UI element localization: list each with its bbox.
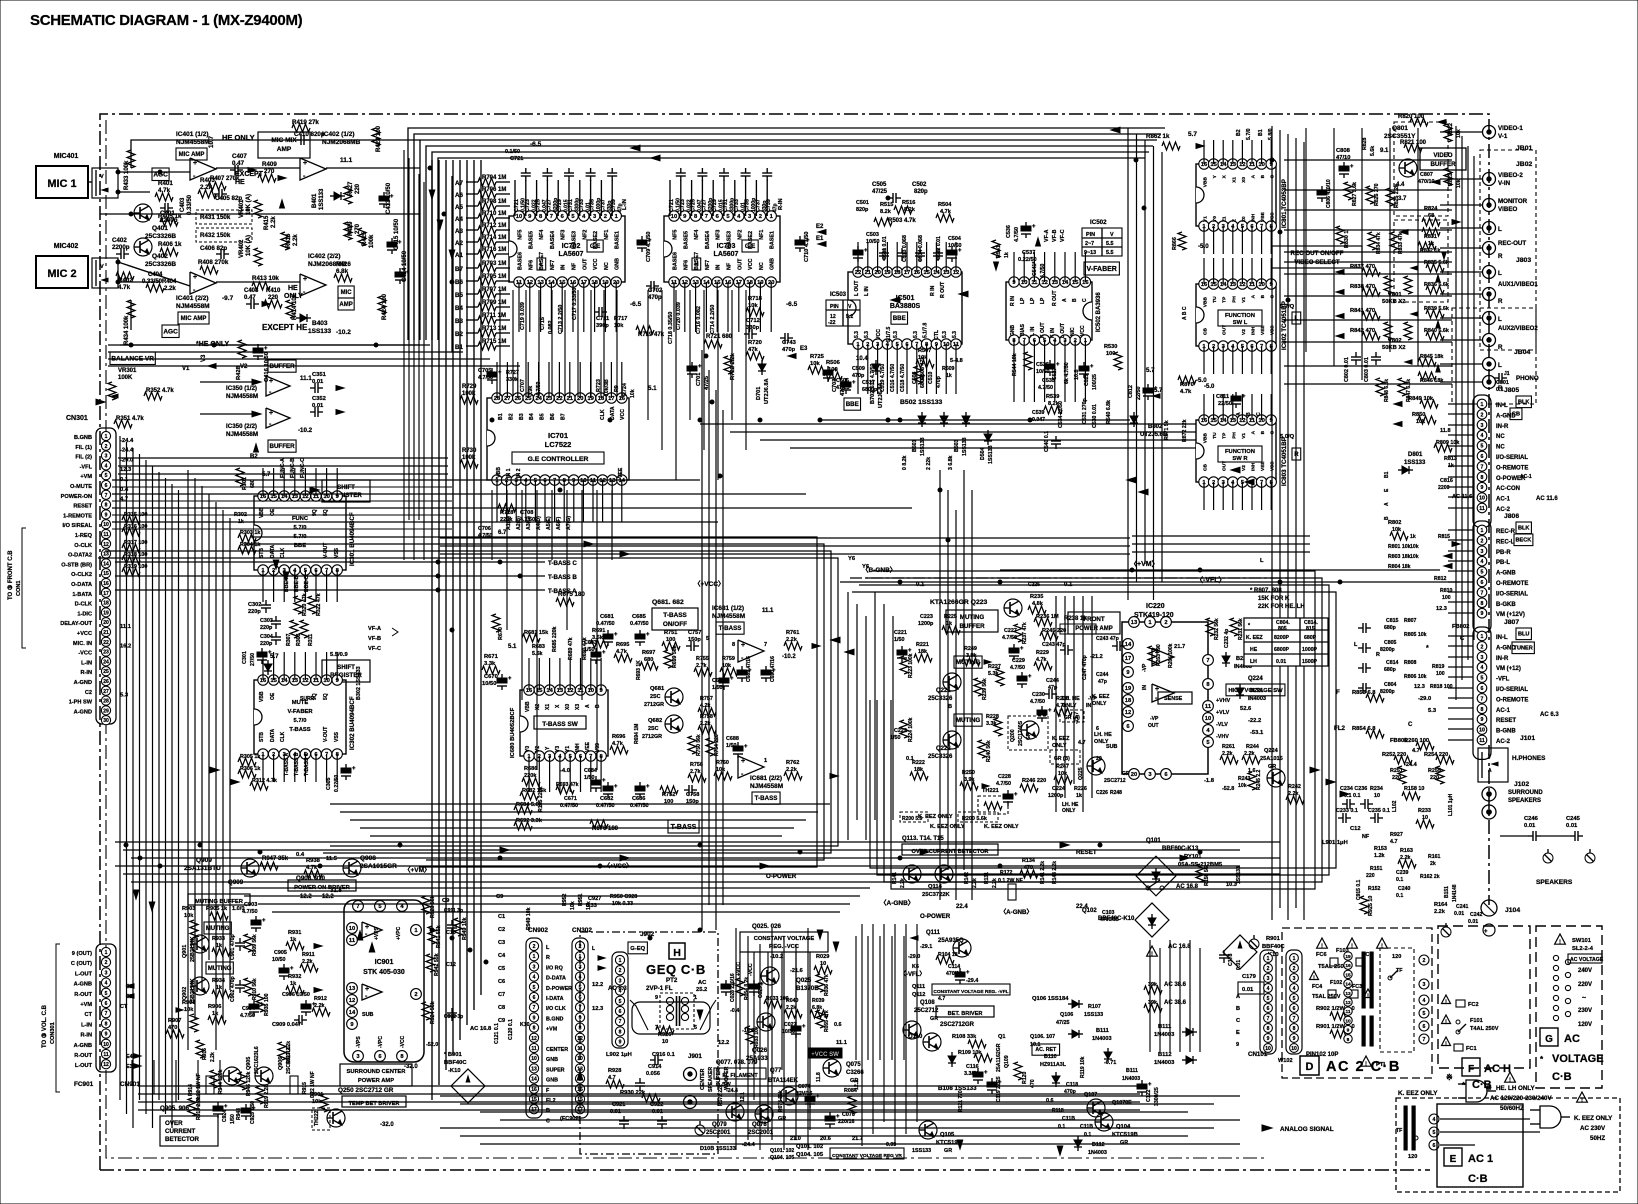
- svg-text:-VP: -VP: [1142, 663, 1148, 672]
- svg-text:!: !: [1151, 952, 1153, 958]
- svg-text:NJM4558M: NJM4558M: [750, 783, 783, 790]
- svg-text:8: 8: [1481, 601, 1484, 607]
- svg-text:C720 0.039: C720 0.039: [676, 302, 682, 330]
- svg-text:AMP: AMP: [339, 302, 352, 308]
- svg-text:10k: 10k: [1392, 527, 1401, 533]
- svg-text:BBF40C: BBF40C: [444, 1060, 467, 1066]
- svg-text:T-BASS: T-BASS: [289, 727, 310, 733]
- svg-text:L102: L102: [1392, 800, 1398, 812]
- svg-text:7: 7: [1423, 1037, 1426, 1043]
- svg-text:0.1: 0.1: [1084, 1132, 1091, 1138]
- svg-text:E: E: [1236, 1030, 1240, 1036]
- svg-text:+: +: [614, 784, 618, 790]
- svg-text:10k/3B: 10k/3B: [604, 379, 610, 396]
- svg-text:(FC902): (FC902): [560, 1116, 581, 1122]
- svg-text:UT2J6.8A: UT2J6.8A: [764, 379, 770, 405]
- svg-text:H.PHONES: H.PHONES: [1512, 755, 1546, 762]
- svg-text:NJM4558M: NJM4558M: [712, 613, 745, 620]
- svg-text:C402: C402: [112, 237, 127, 244]
- svg-text:H: H: [673, 947, 681, 959]
- svg-text:PIN: PIN: [1086, 232, 1095, 238]
- svg-text:1-PH SW: 1-PH SW: [69, 700, 93, 706]
- svg-text:VCC: VCC: [876, 329, 882, 340]
- svg-text:LH: LH: [1250, 659, 1257, 665]
- svg-text:R352 4.7k: R352 4.7k: [146, 388, 174, 394]
- svg-text:R509: R509: [942, 366, 955, 372]
- svg-text:A-GND: A-GND: [74, 680, 92, 686]
- svg-text:B112: B112: [1092, 1142, 1105, 1148]
- svg-text:C909 0.047: C909 0.047: [272, 1022, 301, 1028]
- svg-text:12.2: 12.2: [854, 1080, 860, 1090]
- svg-text:6.8k: 6.8k: [336, 268, 349, 275]
- svg-text:VCC: VCC: [620, 409, 626, 420]
- svg-text:R-IN: R-IN: [81, 670, 93, 676]
- svg-text:0.1: 0.1: [1396, 893, 1403, 899]
- svg-text:50KB X2: 50KB X2: [1382, 345, 1406, 351]
- svg-text:10k: 10k: [716, 767, 725, 773]
- svg-text:C7: C7: [498, 992, 505, 998]
- svg-text:220V: 220V: [1578, 982, 1592, 988]
- svg-text:V1: V1: [182, 366, 190, 372]
- svg-text:L IN: L IN: [864, 286, 870, 296]
- svg-text:C304: C304: [260, 634, 273, 640]
- svg-text:7: 7: [1293, 1016, 1296, 1022]
- svg-text:V-OUT: V-OUT: [323, 543, 329, 558]
- svg-text:C683: C683: [584, 640, 597, 646]
- svg-text:26: 26: [103, 679, 109, 685]
- svg-text:SURROUND: SURROUND: [1508, 790, 1543, 796]
- svg-text:10/50: 10/50: [272, 957, 286, 963]
- svg-text:K OUT: K OUT: [1040, 322, 1046, 338]
- svg-text:!: !: [1509, 1078, 1511, 1084]
- svg-text:ANALOG SIGNAL: ANALOG SIGNAL: [1280, 1126, 1334, 1133]
- svg-text:SW L: SW L: [1233, 320, 1248, 326]
- svg-text:Q908. 910: Q908. 910: [296, 875, 325, 882]
- svg-text:-29.0: -29.0: [908, 954, 920, 960]
- svg-text:R401: R401: [158, 180, 173, 187]
- svg-text:O-DATA: O-DATA: [71, 582, 92, 588]
- svg-text:7: 7: [1267, 1016, 1270, 1022]
- svg-text:R351 4.7k: R351 4.7k: [116, 416, 144, 422]
- svg-text:9: 9: [105, 512, 108, 518]
- svg-text:2: 2: [1164, 620, 1167, 626]
- svg-text:2: 2: [1267, 966, 1270, 972]
- svg-text:10k: 10k: [1410, 544, 1419, 550]
- svg-text:0.047: 0.047: [1032, 417, 1045, 423]
- svg-text:R828: R828: [1362, 137, 1368, 150]
- svg-text:B2: B2: [250, 454, 258, 460]
- svg-text:TF: TF: [1396, 1128, 1402, 1134]
- svg-text:C670: C670: [484, 674, 498, 680]
- svg-text:C516 4.7/50: C516 4.7/50: [890, 364, 896, 392]
- svg-text:Q102: Q102: [1082, 908, 1097, 914]
- svg-text:CTL: CTL: [934, 329, 940, 340]
- svg-text:5: 5: [1433, 1130, 1436, 1136]
- svg-text:1: 1: [764, 758, 767, 764]
- svg-text:IC401 (2/2): IC401 (2/2): [176, 295, 209, 302]
- svg-text:2: 2: [105, 960, 108, 966]
- svg-text:-32.0: -32.0: [404, 1064, 418, 1070]
- svg-text:+: +: [730, 676, 734, 682]
- svg-text:R862 1k: R862 1k: [1146, 133, 1170, 140]
- svg-text:11: 11: [349, 938, 356, 944]
- svg-text:MUTING: MUTING: [956, 659, 981, 666]
- svg-text:R IN: R IN: [1010, 296, 1016, 306]
- svg-text:6: 6: [1481, 686, 1484, 692]
- svg-text:Q025: Q025: [796, 977, 812, 984]
- svg-text:JB01: JB01: [1516, 145, 1532, 152]
- svg-text:FUNC: FUNC: [292, 516, 309, 522]
- svg-text:D10B 1SS133: D10B 1SS133: [700, 1146, 736, 1152]
- svg-text:B403: B403: [312, 320, 328, 327]
- svg-text:6: 6: [1433, 1143, 1436, 1149]
- svg-text:9.1: 9.1: [1380, 148, 1389, 154]
- svg-text:Y0: Y0: [525, 746, 531, 752]
- svg-text:8: 8: [533, 1026, 536, 1032]
- svg-text:3 6.8k: 3 6.8k: [948, 455, 954, 470]
- svg-text:REC-L: REC-L: [1496, 539, 1515, 545]
- svg-text:C241: C241: [1456, 904, 1469, 910]
- svg-text:J1: J1: [1504, 371, 1510, 377]
- svg-text:4: 4: [1293, 986, 1296, 992]
- svg-text:330p: 330p: [746, 325, 760, 331]
- svg-text:R431 150k: R431 150k: [200, 214, 231, 221]
- svg-text:10: 10: [662, 1039, 668, 1045]
- svg-text:R228: R228: [986, 714, 999, 720]
- svg-text:C804: C804: [1384, 682, 1397, 688]
- svg-text:C243 47p: C243 47p: [1042, 642, 1066, 648]
- svg-text:B-GNB: B-GNB: [1496, 729, 1516, 735]
- svg-text:R040: R040: [786, 998, 799, 1004]
- svg-text:BBE: BBE: [846, 401, 859, 408]
- svg-text:ONLY: ONLY: [1062, 808, 1076, 814]
- svg-text:CN901: CN901: [120, 1081, 140, 1088]
- svg-text:Q905: Q905: [246, 1057, 252, 1070]
- svg-text:11: 11: [1345, 1009, 1350, 1015]
- svg-text:R925 10: R925 10: [1368, 896, 1374, 916]
- svg-text:C815: C815: [1386, 618, 1399, 624]
- svg-text:BLK: BLK: [1518, 526, 1530, 532]
- svg-text:BASE4: BASE4: [705, 231, 711, 249]
- svg-text:BASE1: BASE1: [770, 231, 776, 249]
- svg-text:C242: C242: [1470, 912, 1483, 918]
- svg-text:C10: C10: [446, 930, 456, 936]
- svg-text:10: 10: [531, 1056, 537, 1062]
- svg-text:C914: C914: [648, 1064, 662, 1070]
- svg-text:8: 8: [105, 1021, 108, 1027]
- svg-text:I/O-SERIAL: I/O-SERIAL: [1496, 591, 1528, 597]
- svg-text:B501: B501: [912, 439, 918, 452]
- svg-text:C240: C240: [1398, 886, 1411, 892]
- svg-text:0.01: 0.01: [1236, 960, 1242, 970]
- svg-text:R530: R530: [1104, 344, 1117, 350]
- svg-text:2SC3551Y: 2SC3551Y: [1384, 133, 1416, 140]
- svg-text:AC H: AC H: [1484, 1063, 1511, 1075]
- svg-text:A: A: [1251, 430, 1257, 434]
- svg-text:13: 13: [1131, 620, 1138, 626]
- svg-text:B502 1SS133: B502 1SS133: [900, 399, 943, 406]
- svg-text:R311: R311: [308, 634, 314, 646]
- svg-text:A: A: [1251, 294, 1257, 298]
- svg-text:MIC AMP: MIC AMP: [179, 152, 205, 158]
- svg-text:8: 8: [1347, 1037, 1350, 1043]
- svg-text:10k: 10k: [614, 323, 624, 329]
- svg-text:0.6: 0.6: [834, 1022, 842, 1028]
- svg-text:KTC519B: KTC519B: [1112, 1132, 1138, 1138]
- svg-text:C222: C222: [894, 728, 907, 734]
- svg-text:TP: TP: [1222, 296, 1228, 303]
- svg-text:R164: R164: [1434, 902, 1448, 908]
- svg-text:MIC402: MIC402: [54, 243, 79, 250]
- svg-text:11.1: 11.1: [340, 157, 353, 164]
- svg-text:2.2k: 2.2k: [164, 286, 176, 292]
- svg-text:NF2: NF2: [737, 230, 743, 240]
- svg-text:+: +: [193, 274, 197, 281]
- svg-text:PT2: PT2: [666, 977, 678, 984]
- svg-text:RESET: RESET: [1496, 718, 1516, 724]
- svg-text:AC 11.6: AC 11.6: [1536, 496, 1558, 502]
- svg-text:B: B: [1246, 412, 1252, 416]
- svg-text:R244: R244: [1246, 744, 1259, 750]
- svg-text:47p: 47p: [1098, 679, 1107, 685]
- svg-text:22: 22: [103, 640, 109, 646]
- svg-text:10: 10: [1479, 728, 1485, 734]
- svg-text:8: 8: [732, 642, 735, 648]
- svg-text:+: +: [1014, 792, 1018, 798]
- svg-text:14: 14: [349, 1010, 356, 1016]
- svg-text:※: ※: [1486, 1084, 1492, 1092]
- svg-text:Q224: Q224: [1248, 676, 1263, 682]
- svg-text:4.7/50: 4.7/50: [1002, 635, 1017, 641]
- svg-text:1: 1: [694, 995, 697, 1001]
- svg-text:C244: C244: [1096, 672, 1109, 678]
- svg-text:0.4: 0.4: [296, 852, 305, 858]
- svg-text:1.2k: 1.2k: [1374, 853, 1385, 859]
- svg-text:VBB: VBB: [496, 467, 502, 478]
- svg-text:R808: R808: [1404, 660, 1417, 666]
- svg-text:R-IN: R-IN: [778, 199, 784, 211]
- svg-text:R224 100k: R224 100k: [908, 717, 914, 742]
- svg-text:1k: 1k: [1004, 252, 1010, 258]
- svg-text:1: 1: [619, 958, 622, 964]
- svg-text:NF3: NF3: [561, 230, 567, 240]
- svg-text:R055 47k: R055 47k: [824, 1010, 830, 1032]
- svg-text:X0: X0: [1241, 177, 1247, 183]
- svg-text:+: +: [1148, 1082, 1152, 1088]
- svg-text:25C2712: 25C2712: [914, 1008, 939, 1014]
- svg-text:4.7: 4.7: [1078, 740, 1086, 746]
- svg-text:LC7522: LC7522: [545, 440, 572, 449]
- svg-text:NF4: NF4: [694, 230, 700, 240]
- svg-text:L901 1μH: L901 1μH: [1322, 840, 1348, 846]
- svg-text:19: 19: [1125, 686, 1132, 692]
- svg-text:Q113. T14. T15: Q113. T14. T15: [902, 836, 944, 842]
- svg-text:T-BASS B: T-BASS B: [548, 574, 577, 581]
- svg-text:FUNC-A: FUNC-A: [280, 458, 286, 478]
- svg-text:11.1: 11.1: [762, 608, 774, 614]
- svg-text:B1370E: B1370E: [796, 985, 818, 992]
- svg-text:4.7/50: 4.7/50: [1014, 227, 1020, 242]
- svg-text:5Q: 5Q: [323, 693, 329, 700]
- svg-text:+: +: [398, 240, 402, 246]
- svg-text:C702: C702: [648, 288, 663, 294]
- svg-text:3: 3: [1267, 976, 1270, 982]
- svg-text:!: !: [1381, 944, 1383, 950]
- svg-text:10: 10: [1374, 793, 1380, 799]
- svg-text:5: 5: [619, 999, 622, 1005]
- svg-text:A: A: [1236, 412, 1242, 416]
- svg-text:GNB: GNB: [546, 1057, 558, 1063]
- svg-text:+: +: [802, 1024, 806, 1030]
- svg-text:HIGH VOLTAGE SW: HIGH VOLTAGE SW: [1228, 688, 1283, 694]
- svg-text:!: !: [1445, 1000, 1447, 1006]
- svg-text:6: 6: [1096, 726, 1099, 732]
- svg-text:C8: C8: [498, 1005, 505, 1011]
- svg-text:R807: R807: [1404, 618, 1417, 624]
- svg-text:KTA1266GR Q223: KTA1266GR Q223: [930, 599, 988, 606]
- svg-text:A: A: [1062, 298, 1068, 302]
- svg-text:CON301: CON301: [50, 1022, 56, 1044]
- svg-text:+: +: [732, 982, 736, 988]
- svg-text:G.E: G.E: [745, 244, 755, 250]
- svg-text:B.GND: B.GND: [546, 1016, 563, 1022]
- svg-text:C: C: [1408, 722, 1413, 728]
- svg-text:5.7/0: 5.7/0: [294, 718, 307, 724]
- svg-text:C118: C118: [1066, 1082, 1078, 1088]
- svg-text:10k: 10k: [1058, 771, 1067, 777]
- svg-text:1: 1: [105, 950, 108, 956]
- svg-text:H: H: [694, 262, 698, 268]
- svg-text:2.2k: 2.2k: [271, 216, 277, 228]
- svg-text:8200p: 8200p: [1380, 647, 1395, 653]
- svg-text:7: 7: [533, 1005, 536, 1011]
- svg-text:C221: C221: [894, 630, 907, 636]
- svg-text:R-OUT: R-OUT: [74, 992, 92, 998]
- svg-text:R685 220k: R685 220k: [552, 627, 558, 652]
- svg-text:C502: C502: [912, 182, 927, 188]
- svg-text:B3: B3: [519, 413, 525, 420]
- svg-text:AC 16.8: AC 16.8: [470, 1026, 492, 1032]
- svg-text:Q111: Q111: [926, 930, 941, 936]
- svg-text:B802: B802: [1148, 424, 1163, 430]
- svg-text:12: 12: [103, 542, 109, 548]
- svg-text:A-GNB: A-GNB: [74, 1043, 92, 1049]
- svg-text:9: 9: [1481, 611, 1484, 617]
- svg-text:230V: 230V: [1578, 1008, 1592, 1014]
- svg-text:IN-R: IN-R: [1496, 656, 1509, 662]
- svg-text:0.33/50: 0.33/50: [187, 194, 193, 215]
- svg-text:100: 100: [666, 637, 675, 643]
- svg-text:4.7/50: 4.7/50: [1010, 665, 1025, 671]
- svg-text:C906 10/50: C906 10/50: [282, 992, 310, 998]
- svg-text:A3: A3: [455, 228, 463, 235]
- svg-text:L: L: [1498, 316, 1502, 323]
- svg-text:R686: R686: [524, 766, 537, 772]
- svg-text:V: V: [100, 174, 104, 180]
- svg-text:D-DATA: D-DATA: [546, 976, 566, 982]
- svg-text:R245 2.2: R245 2.2: [1256, 769, 1262, 790]
- svg-text:24: 24: [103, 659, 109, 665]
- svg-text:5: 5: [694, 1025, 697, 1031]
- svg-text:EXCEPT HE: EXCEPT HE: [262, 323, 308, 332]
- svg-text:R249: R249: [964, 646, 977, 652]
- svg-text:4.7/50: 4.7/50: [1030, 699, 1045, 705]
- svg-text:VF-C: VF-C: [368, 646, 381, 652]
- svg-text:4: 4: [533, 975, 536, 981]
- svg-text:AC: AC: [1564, 1033, 1580, 1045]
- svg-text:C531 270p: C531 270p: [1082, 398, 1088, 424]
- svg-text:PIN: PIN: [830, 304, 839, 310]
- svg-text:4.7: 4.7: [608, 1075, 616, 1081]
- svg-text:Y1: Y1: [1203, 216, 1209, 222]
- svg-text:AMP: AMP: [277, 146, 292, 153]
- svg-text:!: !: [1445, 1020, 1447, 1026]
- svg-text:C5: C5: [498, 966, 505, 972]
- svg-text:4: 4: [1433, 1117, 1436, 1123]
- svg-text:R407 270k: R407 270k: [210, 176, 240, 182]
- svg-text:1/50: 1/50: [894, 637, 905, 643]
- svg-text:C11B: C11B: [1062, 1116, 1075, 1122]
- svg-text:10k: 10k: [630, 389, 636, 398]
- svg-text:+: +: [760, 982, 764, 988]
- svg-text:C707: C707: [520, 379, 526, 392]
- svg-text:L-OUT: L-OUT: [75, 971, 93, 977]
- svg-text:2: 2: [619, 968, 622, 974]
- svg-text:5.0/Q: 5.0/Q: [1280, 434, 1295, 440]
- svg-text:R696: R696: [612, 734, 625, 740]
- svg-text:VF-B: VF-B: [1052, 229, 1058, 242]
- svg-text:OUT: OUT: [1148, 723, 1159, 729]
- svg-text:INH: INH: [1251, 462, 1257, 471]
- svg-text:BUFFER: BUFFER: [269, 443, 295, 450]
- svg-text:-24.4: -24.4: [742, 1142, 756, 1148]
- svg-text:VM (+12V): VM (+12V): [1496, 612, 1525, 618]
- svg-text:T-BASS: T-BASS: [719, 625, 742, 632]
- svg-text:R229: R229: [1036, 650, 1049, 656]
- svg-text:+: +: [772, 668, 776, 674]
- svg-text:CLK: CLK: [280, 731, 286, 742]
- svg-text:Q222: Q222: [936, 746, 951, 752]
- svg-text:Q681: Q681: [650, 686, 665, 692]
- svg-text:C686: C686: [632, 796, 645, 802]
- svg-text:〈+VCC〉: 〈+VCC〉: [694, 580, 725, 588]
- svg-text:C721: C721: [510, 156, 523, 162]
- svg-text:6: 6: [1267, 1006, 1270, 1012]
- svg-text:3: 3: [1293, 976, 1296, 982]
- svg-text:OE: OE: [270, 692, 276, 700]
- svg-text:VSS: VSS: [334, 731, 340, 742]
- svg-text:IC220: IC220: [1146, 603, 1165, 610]
- svg-text:R232 56k: R232 56k: [1214, 618, 1220, 640]
- svg-text:-5.0: -5.0: [1204, 384, 1215, 390]
- svg-text:Q112: Q112: [912, 992, 925, 998]
- svg-text:+: +: [614, 632, 618, 638]
- svg-text:R762: R762: [786, 760, 799, 766]
- svg-text:L OUT: L OUT: [854, 280, 860, 296]
- svg-text:+: +: [646, 632, 650, 638]
- svg-text:B7: B7: [455, 266, 463, 273]
- svg-text:9: 9: [1481, 717, 1484, 723]
- svg-text:C244: C244: [1046, 678, 1059, 684]
- svg-text:10/50: 10/50: [482, 681, 497, 687]
- svg-text:Q025. 026: Q025. 026: [752, 923, 781, 930]
- svg-text:+: +: [365, 986, 369, 993]
- svg-text:BET. BRIVER: BET. BRIVER: [948, 1011, 983, 1017]
- svg-text:CLK: CLK: [600, 409, 606, 420]
- svg-text:+: +: [264, 346, 268, 352]
- svg-text:4.7/50: 4.7/50: [1038, 385, 1053, 391]
- svg-text:R815: R815: [1438, 534, 1450, 540]
